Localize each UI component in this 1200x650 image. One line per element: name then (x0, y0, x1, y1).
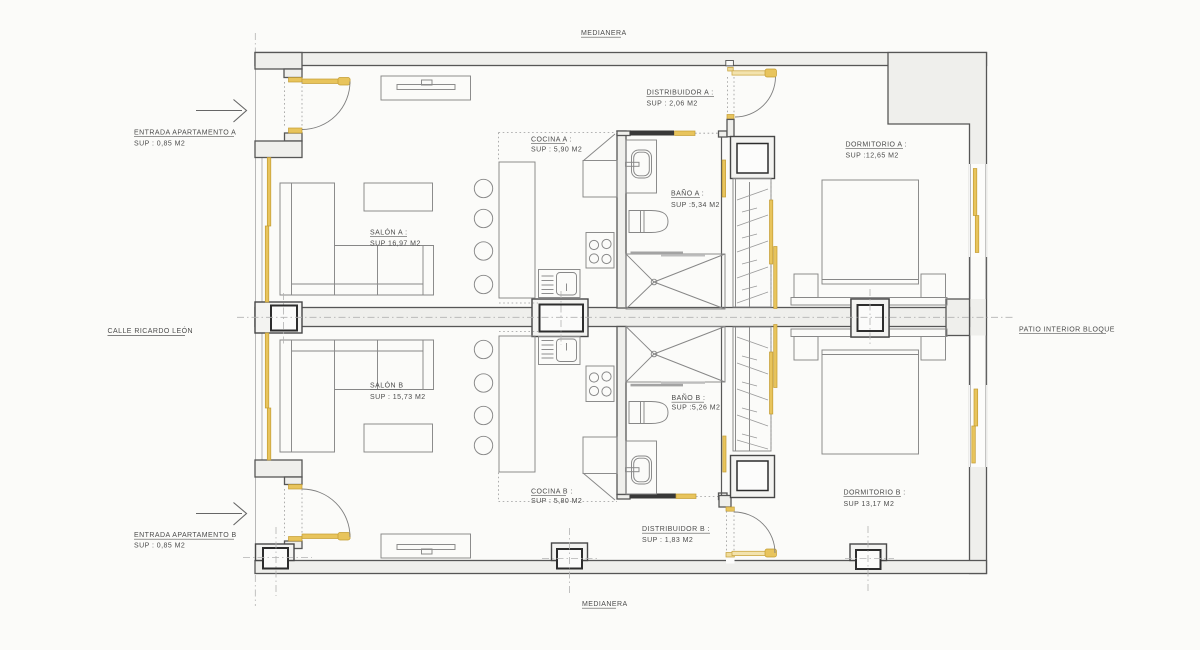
svg-text:SUP 16,97 M2: SUP 16,97 M2 (370, 241, 421, 248)
svg-text:BAÑO A :: BAÑO A : (671, 189, 704, 198)
svg-text:SUP : 0,85 M2: SUP : 0,85 M2 (134, 543, 185, 550)
svg-text:DISTRIBUIDOR B :: DISTRIBUIDOR B : (642, 526, 710, 533)
svg-text:DISTRIBUIDOR A :: DISTRIBUIDOR A : (647, 90, 714, 97)
svg-text:SUP : 0,85 M2: SUP : 0,85 M2 (134, 141, 185, 148)
svg-text:PATIO INTERIOR BLOQUE: PATIO INTERIOR BLOQUE (1019, 327, 1115, 334)
svg-text:DORMITORIO A :: DORMITORIO A : (846, 142, 907, 149)
svg-text:ENTRADA APARTAMENTO A: ENTRADA APARTAMENTO A (134, 130, 236, 137)
svg-text:CALLE RICARDO LEÓN: CALLE RICARDO LEÓN (108, 326, 194, 335)
svg-text:COCINA B :: COCINA B : (531, 489, 573, 496)
svg-text:SUP : 1,83 M2: SUP : 1,83 M2 (642, 537, 693, 544)
svg-text:SUP : 15,73 M2: SUP : 15,73 M2 (370, 394, 426, 401)
svg-text:ENTRADA APARTAMENTO B: ENTRADA APARTAMENTO B (134, 532, 237, 539)
svg-text:BAÑO B :: BAÑO B : (672, 393, 706, 402)
svg-text:SUP 13,17 M2: SUP 13,17 M2 (844, 501, 895, 508)
svg-text:DORMITORIO B :: DORMITORIO B : (844, 490, 906, 497)
svg-text:SUP : 2,06 M2: SUP : 2,06 M2 (647, 101, 698, 108)
svg-text:SALÓN B: SALÓN B (370, 381, 404, 390)
svg-text:SUP : 5,80 M2: SUP : 5,80 M2 (531, 498, 582, 505)
svg-text:COCINA A :: COCINA A : (531, 137, 572, 144)
svg-text:SUP : 5,90 M2: SUP : 5,90 M2 (531, 147, 582, 154)
svg-text:SUP :5,34 M2: SUP :5,34 M2 (671, 202, 720, 209)
svg-text:MEDIANERA: MEDIANERA (582, 601, 628, 608)
svg-text:SUP :5,26 M2: SUP :5,26 M2 (672, 405, 721, 412)
svg-text:MEDIANERA: MEDIANERA (581, 30, 627, 37)
svg-text:SUP :12,65 M2: SUP :12,65 M2 (846, 153, 899, 160)
svg-text:SALÓN A :: SALÓN A : (370, 228, 408, 237)
